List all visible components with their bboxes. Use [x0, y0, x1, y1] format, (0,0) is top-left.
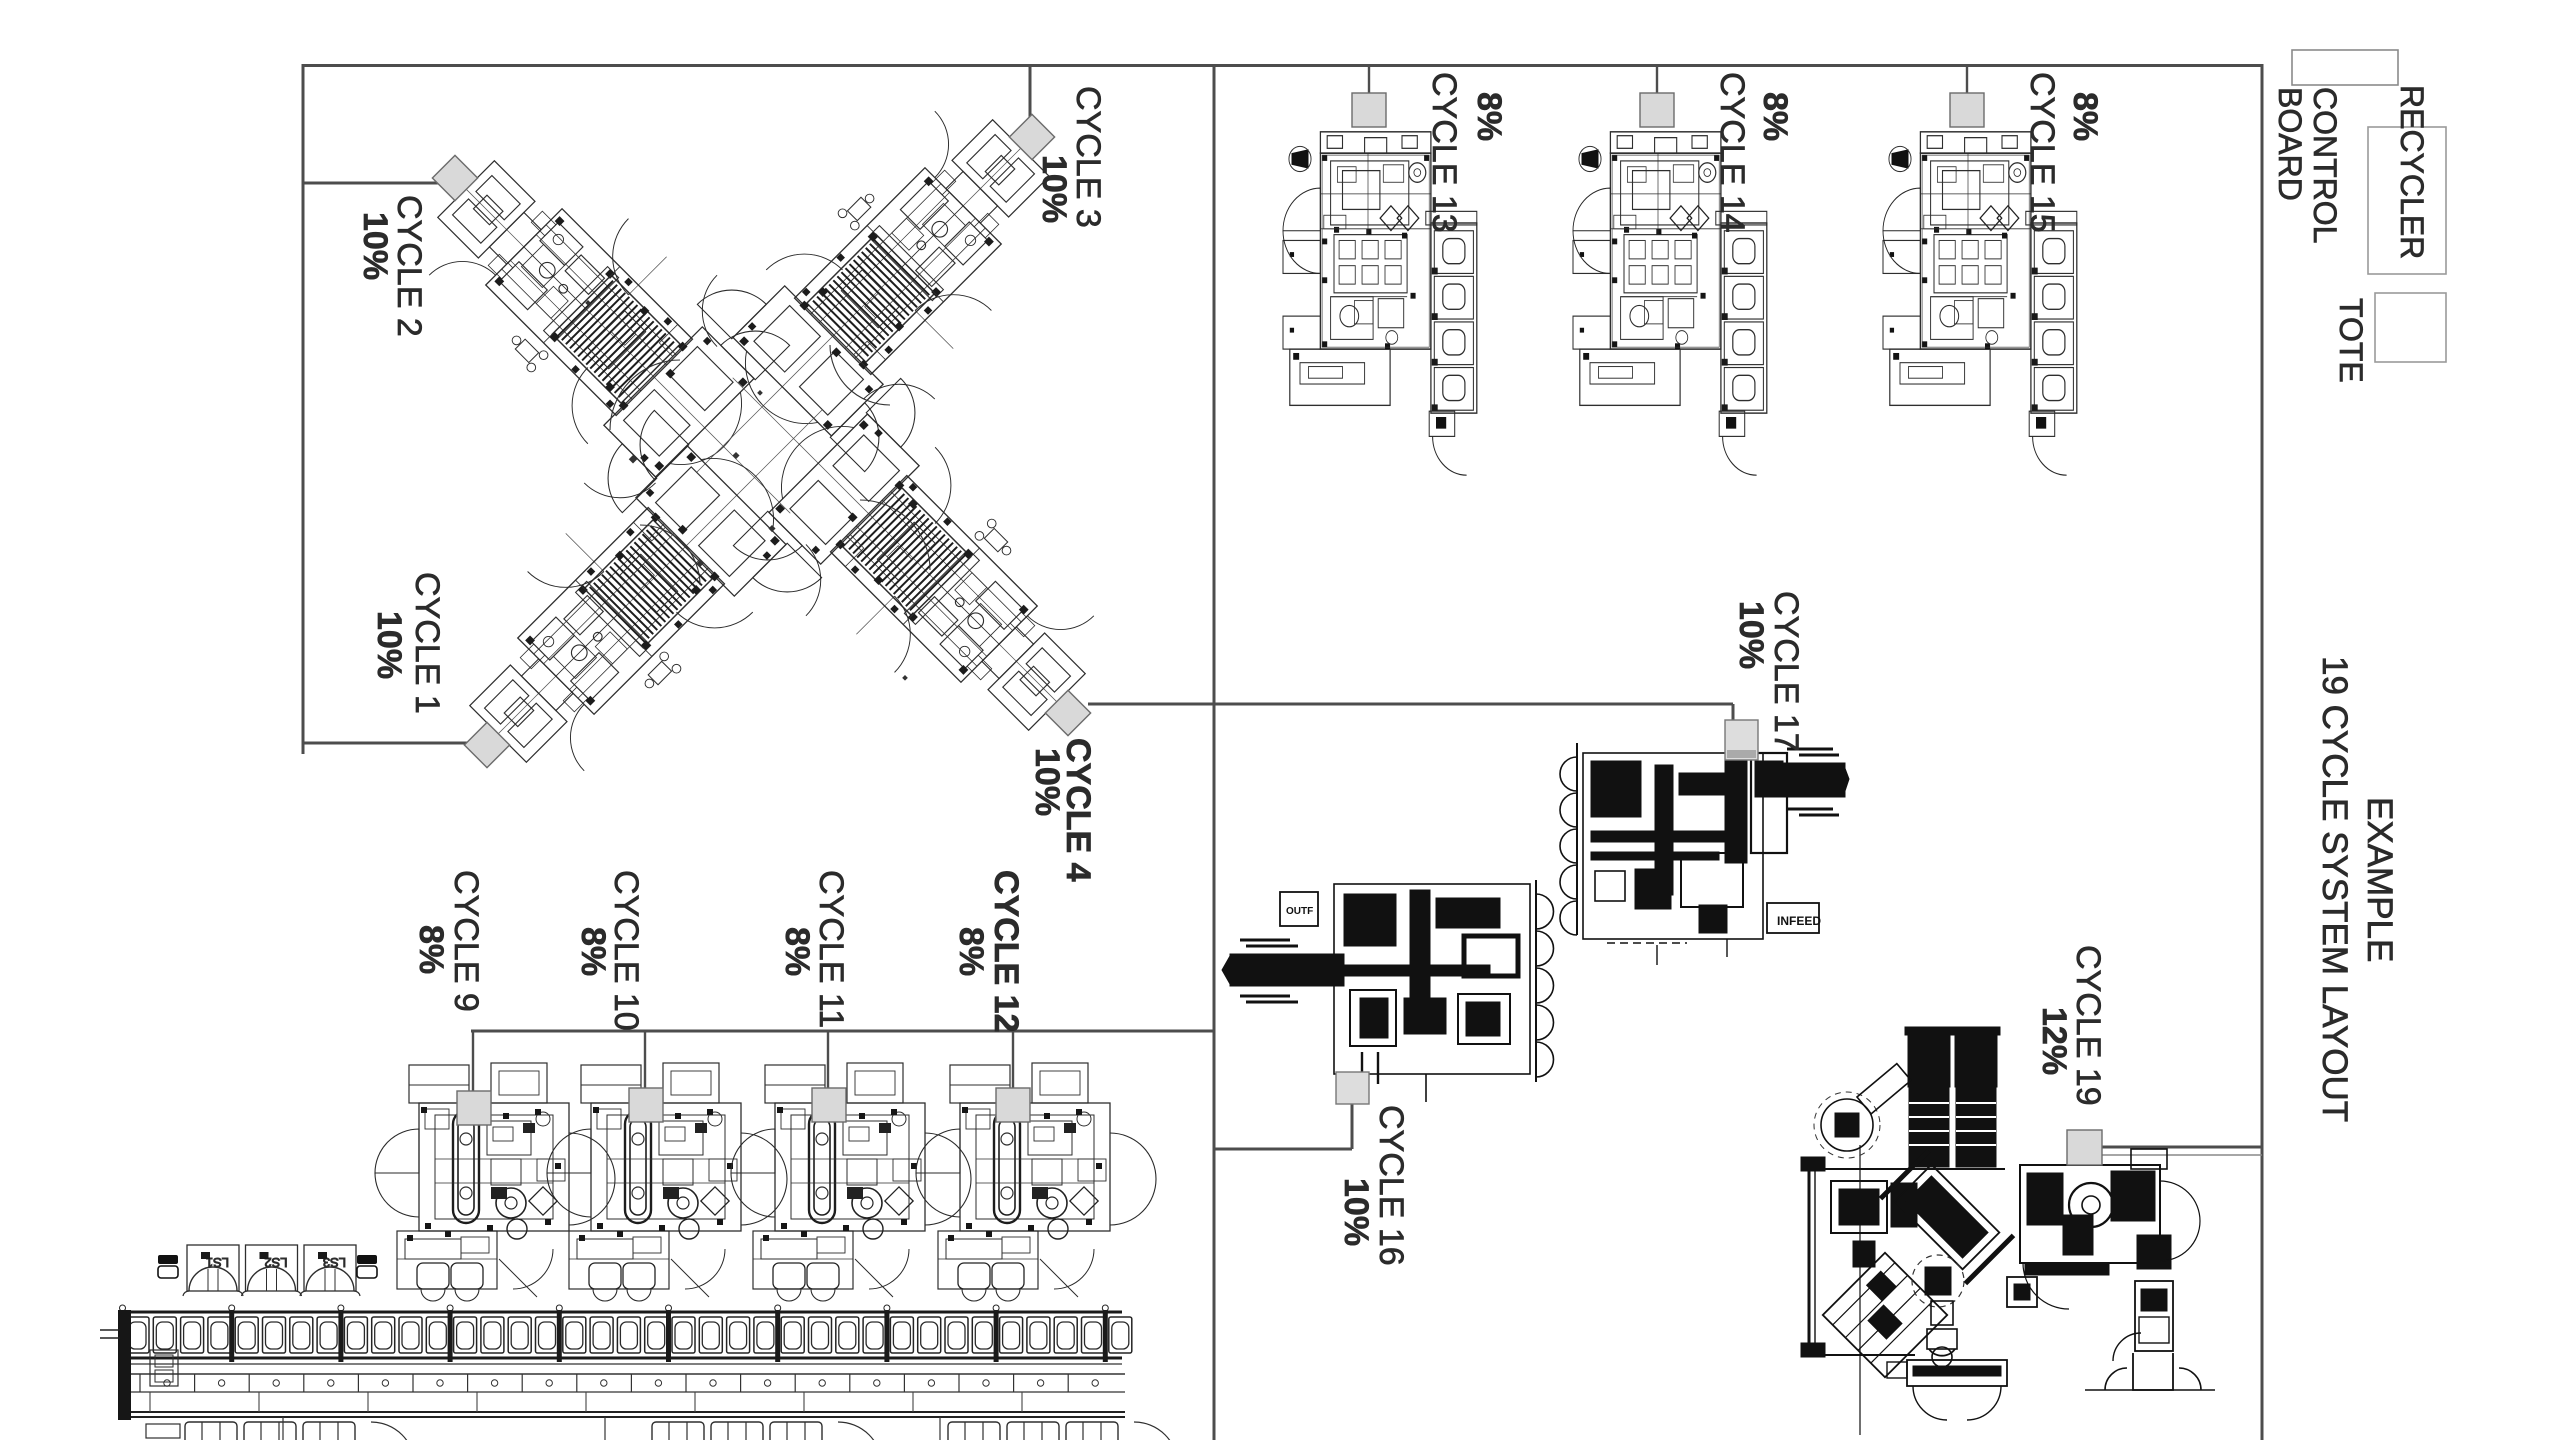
svg-text:CYCLE 13: CYCLE 13	[1425, 72, 1463, 233]
svg-text:8%: 8%	[1470, 92, 1508, 141]
svg-text:8%: 8%	[2066, 92, 2104, 141]
svg-text:CYCLE 2: CYCLE 2	[390, 195, 428, 337]
svg-text:8%: 8%	[952, 927, 990, 976]
svg-text:CYCLE 19: CYCLE 19	[2069, 945, 2107, 1106]
svg-text:CONTROL: CONTROL	[2307, 87, 2343, 243]
svg-text:EXAMPLE: EXAMPLE	[2360, 797, 2399, 962]
svg-text:12%: 12%	[2035, 1007, 2073, 1075]
svg-text:CYCLE 1: CYCLE 1	[408, 572, 446, 714]
svg-text:CYCLE 12: CYCLE 12	[987, 870, 1025, 1033]
svg-text:CYCLE 9: CYCLE 9	[447, 870, 485, 1012]
svg-text:10%: 10%	[1337, 1178, 1375, 1246]
svg-text:CYCLE 11: CYCLE 11	[812, 870, 850, 1028]
svg-text:10%: 10%	[1028, 748, 1066, 816]
svg-text:RECYCLER: RECYCLER	[2394, 85, 2430, 259]
svg-text:CYCLE 3: CYCLE 3	[1069, 86, 1107, 228]
svg-text:CYCLE 15: CYCLE 15	[2023, 72, 2061, 233]
svg-text:CYCLE 16: CYCLE 16	[1372, 1105, 1410, 1266]
svg-text:8%: 8%	[574, 927, 612, 976]
svg-text:8%: 8%	[412, 925, 450, 974]
svg-text:10%: 10%	[370, 611, 408, 679]
svg-text:8%: 8%	[778, 927, 816, 976]
svg-text:TOTE: TOTE	[2333, 298, 2369, 383]
svg-text:INFEED: INFEED	[1777, 914, 1821, 928]
svg-text:19 CYCLE SYSTEM LAYOUT: 19 CYCLE SYSTEM LAYOUT	[2315, 656, 2354, 1122]
svg-text:BOARD: BOARD	[2272, 87, 2308, 201]
svg-text:10%: 10%	[1035, 155, 1073, 223]
svg-text:OUTF: OUTF	[1286, 906, 1313, 917]
svg-text:10%: 10%	[356, 212, 394, 280]
svg-text:8%: 8%	[1756, 92, 1794, 141]
svg-text:10%: 10%	[1732, 601, 1770, 669]
svg-text:CYCLE 17: CYCLE 17	[1767, 591, 1805, 752]
svg-text:CYCLE 14: CYCLE 14	[1713, 72, 1751, 233]
